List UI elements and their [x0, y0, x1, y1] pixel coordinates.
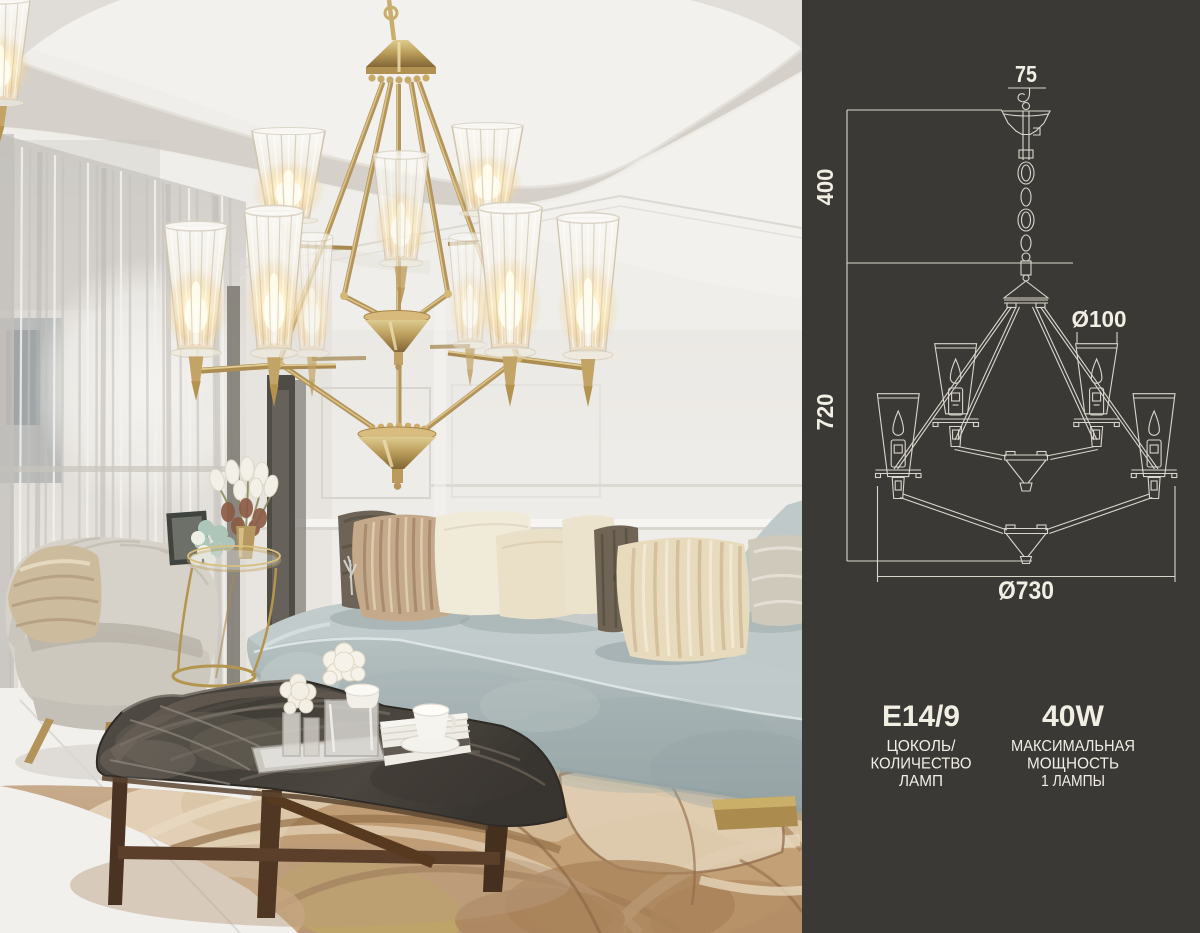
svg-text:1 ЛАМПЫ: 1 ЛАМПЫ	[1041, 773, 1105, 790]
svg-text:E14/9: E14/9	[882, 700, 960, 733]
svg-text:МАКСИМАЛЬНАЯ: МАКСИМАЛЬНАЯ	[1011, 738, 1135, 755]
svg-text:720: 720	[812, 394, 838, 431]
svg-text:400: 400	[812, 169, 838, 206]
svg-text:КОЛИЧЕСТВО: КОЛИЧЕСТВО	[871, 756, 972, 773]
svg-text:40W: 40W	[1042, 700, 1105, 733]
svg-text:ЛАМП: ЛАМП	[899, 773, 943, 790]
svg-text:Ø100: Ø100	[1072, 306, 1127, 332]
svg-text:Ø730: Ø730	[998, 577, 1054, 605]
svg-text:МОЩНОСТЬ: МОЩНОСТЬ	[1027, 756, 1119, 773]
svg-text:ЦОКОЛЬ/: ЦОКОЛЬ/	[887, 738, 957, 755]
svg-text:75: 75	[1015, 61, 1037, 87]
